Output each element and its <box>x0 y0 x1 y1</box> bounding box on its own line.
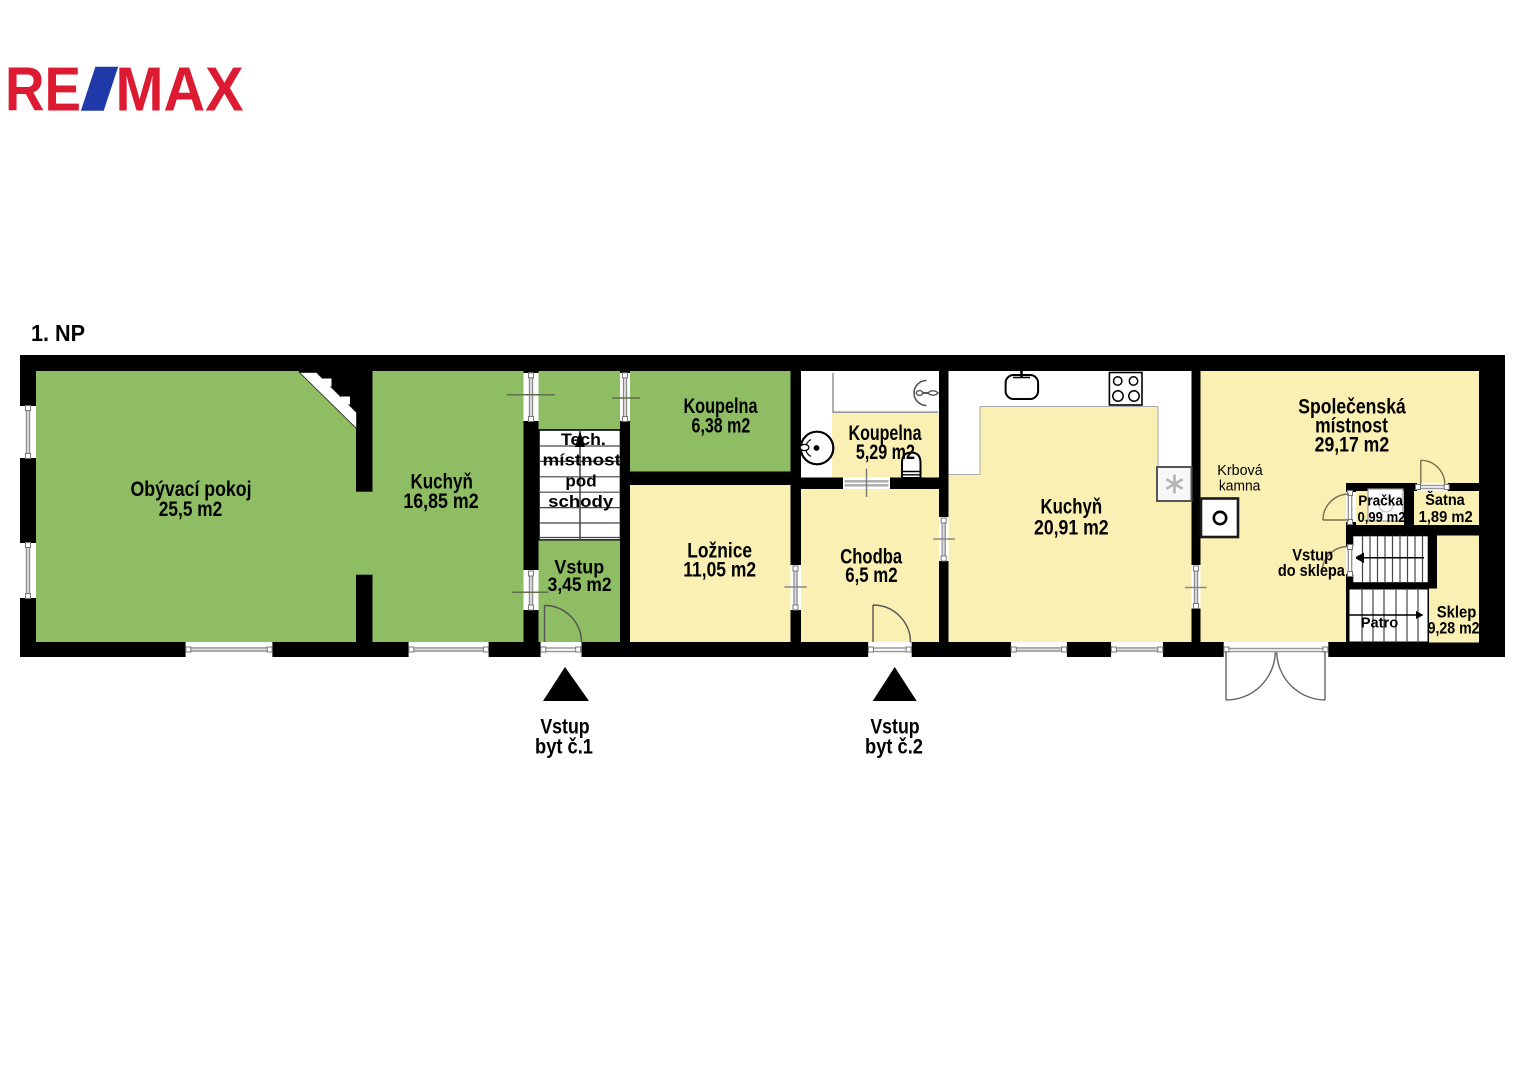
svg-text:byt č.2: byt č.2 <box>865 736 923 759</box>
svg-text:6,38 m2: 6,38 m2 <box>692 415 751 438</box>
svg-text:schody: schody <box>548 492 614 511</box>
svg-text:kamna: kamna <box>1219 478 1261 495</box>
svg-text:11,05 m2: 11,05 m2 <box>683 558 756 581</box>
svg-text:Kuchyň: Kuchyň <box>1041 496 1103 519</box>
svg-text:Patro: Patro <box>1361 616 1399 632</box>
svg-text:0,99 m2: 0,99 m2 <box>1358 509 1406 526</box>
svg-text:20,91 m2: 20,91 m2 <box>1034 517 1109 540</box>
svg-text:byt č.1: byt č.1 <box>535 736 593 759</box>
svg-text:16,85 m2: 16,85 m2 <box>403 490 478 513</box>
svg-text:29,17 m2: 29,17 m2 <box>1315 434 1390 457</box>
svg-text:1. NP: 1. NP <box>31 320 85 346</box>
svg-text:6,5 m2: 6,5 m2 <box>845 564 897 587</box>
svg-text:5,29 m2: 5,29 m2 <box>856 441 915 464</box>
svg-text:25,5 m2: 25,5 m2 <box>159 498 222 521</box>
svg-text:Šatna: Šatna <box>1425 491 1465 509</box>
svg-text:9,28 m2: 9,28 m2 <box>1428 619 1480 638</box>
svg-text:Krbová: Krbová <box>1217 462 1263 479</box>
svg-text:pod: pod <box>565 472 596 491</box>
svg-text:MAX: MAX <box>116 56 244 125</box>
svg-text:Tech.: Tech. <box>561 430 606 449</box>
svg-text:Pračka: Pračka <box>1358 493 1403 510</box>
svg-text:místnost: místnost <box>543 451 622 470</box>
svg-text:RE: RE <box>5 56 81 125</box>
svg-text:3,45 m2: 3,45 m2 <box>548 575 612 596</box>
svg-text:1,89 m2: 1,89 m2 <box>1419 509 1473 526</box>
svg-text:do sklepa: do sklepa <box>1278 562 1346 580</box>
